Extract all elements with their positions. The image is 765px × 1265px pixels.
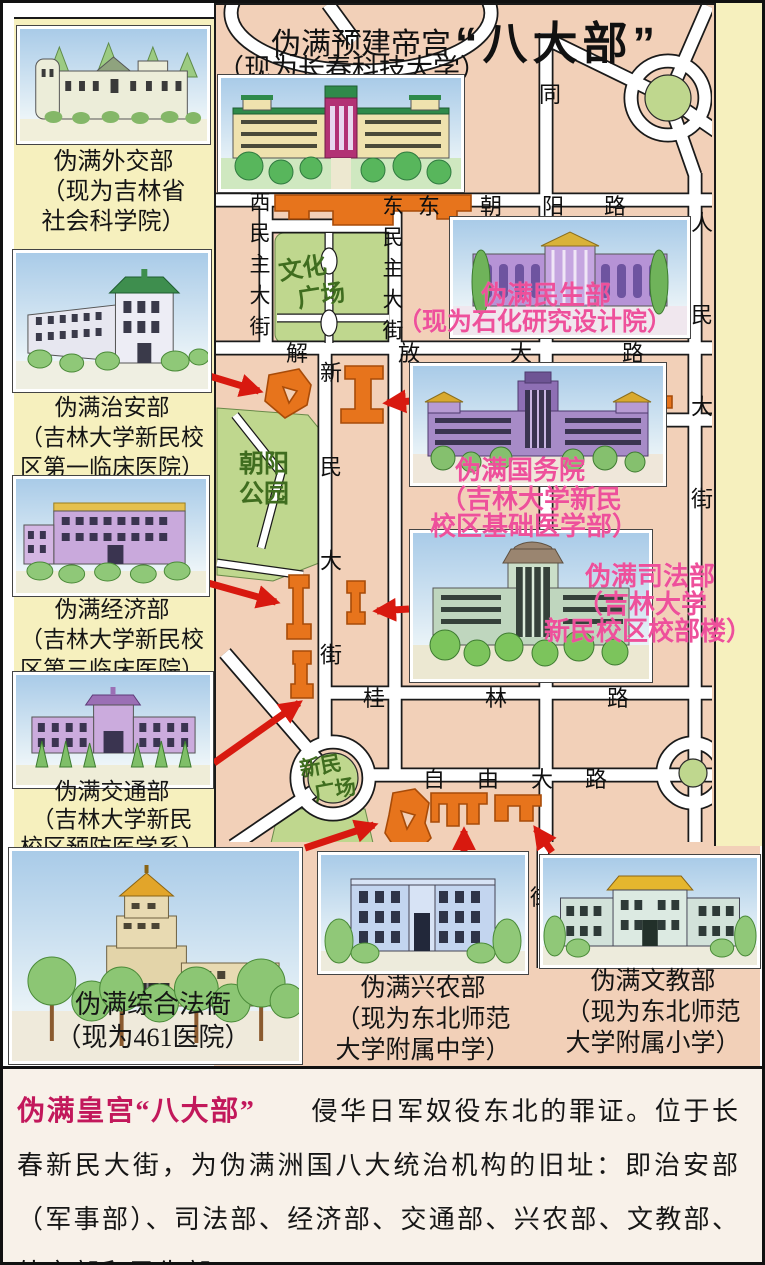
footprint-jiaotongbu	[291, 651, 313, 698]
footprint-zhianbu	[265, 369, 311, 418]
arrow-zhianbu	[206, 375, 259, 391]
card-wenjiaobu-caption: 伪满文教部 （现为东北师范 大学附属小学）	[548, 966, 758, 1059]
card-jingjibu-image	[16, 479, 206, 593]
street-renmin: 人民大街	[684, 211, 716, 579]
card-title: 伪满治安部	[7, 393, 217, 423]
card-title: 伪满文教部	[548, 966, 758, 997]
guowuyuan-label-line3: 校区基础医学部）	[430, 506, 638, 543]
southeast-roundabout-center	[679, 759, 707, 787]
street-dongchaoyang: 东朝阳路	[418, 189, 666, 221]
footprint-jingjibu	[287, 575, 311, 639]
arrow-sifabu	[377, 609, 409, 611]
minshengbu-label-line2: （现为石化研究设计院）	[397, 302, 672, 338]
card-waijiaobu-image	[20, 29, 207, 141]
main-title: “八大部”	[455, 7, 660, 72]
card-jingjibu-caption: 伪满经济部 （吉林大学新民校 区第三临床医院）	[7, 595, 217, 685]
card-title: 伪满交通部	[7, 778, 217, 806]
xinmin-square-label: 新民广场	[298, 749, 358, 809]
card-xingnongbu-image	[321, 855, 525, 971]
street-jiefang: 解放大路	[286, 336, 734, 368]
digong-illustration	[221, 78, 461, 189]
jingjibu-illustration	[16, 479, 206, 593]
street-ziyou: 自由大路	[423, 762, 639, 794]
culture-square-label: 文化广场	[277, 249, 348, 318]
zhianbu-illustration	[16, 253, 208, 389]
card-title: 伪满综合法衙	[23, 988, 283, 1021]
footprint-wenjiaobu	[495, 795, 541, 821]
card-jiaotongbu-caption: 伪满交通部 （吉林大学新民 校区预防医学系）	[7, 778, 217, 862]
card-zhianbu-image	[16, 253, 208, 389]
footprint-xingnongbu	[431, 793, 487, 826]
street-ximinzhu: 西民主大街	[244, 191, 274, 346]
description-heading: 伪满皇宫“八大部”	[17, 1096, 255, 1127]
inset-digong	[221, 78, 461, 189]
description-block: 伪满皇宫“八大部”侵华日军奴役东北的罪证。位于长春新民大街，为伪满洲国八大统治机…	[3, 1066, 762, 1262]
card-title: 伪满兴农部	[318, 973, 528, 1004]
card-wenjiaobu-image	[543, 858, 757, 965]
card-zhianbu-caption: 伪满治安部 （吉林大学新民校 区第一临床医院）	[7, 393, 217, 483]
footprint-guowuyuan	[341, 366, 383, 423]
arrow-guowuyuan	[387, 401, 411, 403]
card-sub1: （现为东北师范	[318, 1004, 528, 1035]
waijiaobu-illustration	[20, 29, 207, 141]
card-sub2: 大学附属中学）	[318, 1035, 528, 1066]
street-tongzhi-char: 同	[539, 77, 561, 109]
card-title: 伪满经济部	[7, 595, 217, 625]
northeast-roundabout-center	[645, 75, 691, 121]
footprint-fayu	[385, 789, 431, 855]
jiaotongbu-illustration	[16, 675, 210, 785]
description-text: 伪满皇宫“八大部”侵华日军奴役东北的罪证。位于长春新民大街，为伪满洲国八大统治机…	[17, 1085, 740, 1265]
card-sub1: （现为吉林省	[11, 177, 216, 207]
card-jiaotongbu-image	[16, 675, 210, 785]
tourist-map-page: 东朝阳路 解放大路 桂林路 自由大路 西民主大街 东民主大街 新民大街 人民大街…	[0, 0, 765, 1265]
card-sub1: （吉林大学新民校	[7, 423, 217, 453]
street-guilin: 桂林路	[363, 681, 729, 713]
street-xinmin: 新民大街	[313, 361, 345, 737]
card-sub1: （吉林大学新民	[7, 806, 217, 834]
card-sub1: （现为461医院）	[23, 1021, 283, 1054]
card-sub2: 社会科学院）	[11, 207, 216, 237]
card-sub1: （现为东北师范	[548, 997, 758, 1028]
card-sub2: 大学附属小学）	[548, 1028, 758, 1059]
card-fayu-caption: 伪满综合法衙 （现为461医院）	[23, 988, 283, 1054]
chaoyang-park-label: 朝阳公园	[239, 449, 289, 509]
sifabu-label-line3: 新民校区校部楼）	[544, 611, 752, 648]
card-xingnongbu-caption: 伪满兴农部 （现为东北师范 大学附属中学）	[318, 973, 528, 1066]
wenjiaobu-illustration	[543, 858, 757, 965]
card-sub1: （吉林大学新民校	[7, 625, 217, 655]
footprint-sifabu	[347, 581, 365, 624]
card-waijiaobu-caption: 伪满外交部 （现为吉林省 社会科学院）	[11, 147, 216, 237]
card-title: 伪满外交部	[11, 147, 216, 177]
xingnongbu-illustration	[321, 855, 525, 971]
